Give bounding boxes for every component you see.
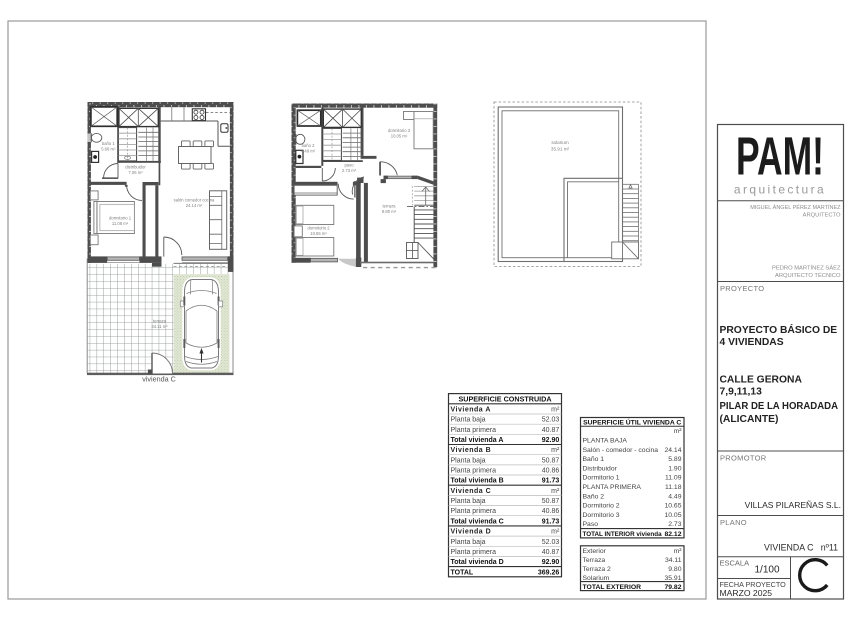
svg-text:ARQUITECTO TÉCNICO: ARQUITECTO TÉCNICO	[775, 272, 841, 279]
svg-text:m²: m²	[551, 447, 560, 454]
svg-text:50.87: 50.87	[542, 457, 560, 464]
svg-text:9.80 m²: 9.80 m²	[382, 209, 397, 214]
svg-text:Total vivienda B: Total vivienda B	[451, 478, 504, 485]
svg-text:ARQUITECTO: ARQUITECTO	[803, 213, 841, 219]
svg-text:m²: m²	[551, 529, 560, 536]
svg-text:Vivienda A: Vivienda A	[451, 407, 491, 414]
svg-text:paso: paso	[344, 163, 354, 168]
svg-text:10.65: 10.65	[664, 503, 681, 510]
svg-text:7,9,11,13: 7,9,11,13	[720, 387, 763, 398]
svg-text:10.05 m²: 10.05 m²	[391, 134, 408, 139]
svg-text:34.11: 34.11	[665, 557, 682, 564]
svg-text:SUPERFICIE CONSTRUIDA: SUPERFICIE CONSTRUIDA	[458, 395, 551, 404]
svg-text:PEDRO MARTÍNEZ SÁEZ: PEDRO MARTÍNEZ SÁEZ	[772, 265, 841, 272]
svg-text:Baño 1: Baño 1	[583, 456, 605, 463]
svg-text:VIVIENDA C nº11: VIVIENDA C nº11	[764, 543, 838, 553]
svg-text:Salón - comedor - cocina: Salón - comedor - cocina	[583, 447, 659, 454]
svg-text:arquitectura: arquitectura	[734, 183, 826, 197]
svg-text:vivienda C: vivienda C	[142, 375, 176, 384]
svg-text:Terraza: Terraza	[583, 557, 606, 564]
svg-text:Baño 2: Baño 2	[583, 493, 605, 500]
svg-text:369.26: 369.26	[538, 569, 560, 576]
svg-text:34.11 m²: 34.11 m²	[151, 324, 168, 329]
svg-text:Dormitorio 1: Dormitorio 1	[583, 475, 620, 482]
svg-text:5.68 m²: 5.68 m²	[101, 147, 116, 152]
svg-text:11.18: 11.18	[665, 484, 682, 491]
svg-text:MIGUEL ÁNGEL PÉREZ MARTÍNEZ: MIGUEL ÁNGEL PÉREZ MARTÍNEZ	[750, 204, 841, 211]
svg-text:24.14: 24.14	[664, 447, 681, 454]
svg-text:Planta primera: Planta primera	[451, 508, 497, 515]
svg-text:MARZO 2025: MARZO 2025	[720, 588, 773, 598]
svg-text:m²: m²	[674, 548, 683, 555]
svg-text:Planta baja: Planta baja	[451, 417, 486, 424]
svg-text:10.65 m²: 10.65 m²	[310, 231, 327, 236]
svg-text:TOTAL EXTERIOR: TOTAL EXTERIOR	[583, 584, 642, 591]
svg-text:35.91 m²: 35.91 m²	[551, 147, 570, 152]
svg-text:Vivienda C: Vivienda C	[451, 488, 492, 495]
svg-text:PLANTA BAJA: PLANTA BAJA	[583, 438, 628, 445]
svg-text:SUPERFICIE ÚTIL VIVIENDA C: SUPERFICIE ÚTIL VIVIENDA C	[583, 417, 681, 426]
svg-text:2.73 m²: 2.73 m²	[342, 168, 357, 173]
svg-text:7.06 m²: 7.06 m²	[128, 170, 143, 175]
svg-text:91.73: 91.73	[542, 518, 560, 525]
svg-text:Dormitorio 2: Dormitorio 2	[583, 503, 620, 510]
svg-text:Distribuidor: Distribuidor	[583, 465, 618, 472]
svg-text:PAM!: PAM!	[736, 127, 824, 187]
svg-text:dormitorio 1: dormitorio 1	[109, 216, 132, 221]
svg-text:40.87: 40.87	[542, 427, 560, 434]
svg-text:PLANO: PLANO	[720, 518, 747, 527]
svg-text:Vivienda B: Vivienda B	[451, 447, 492, 454]
svg-text:TOTAL INTERIOR vivienda: TOTAL INTERIOR vivienda	[583, 531, 663, 538]
svg-text:Solarium: Solarium	[583, 575, 610, 582]
svg-text:40.86: 40.86	[542, 508, 560, 515]
svg-text:52.03: 52.03	[542, 417, 560, 424]
svg-text:24.14 m²: 24.14 m²	[186, 203, 203, 208]
svg-text:PROYECTO: PROYECTO	[720, 284, 764, 293]
svg-text:dormitorio 2: dormitorio 2	[307, 226, 330, 231]
svg-text:11.09: 11.09	[665, 475, 682, 482]
svg-text:PILAR DE LA HORADADA: PILAR DE LA HORADADA	[720, 401, 839, 412]
svg-text:(ALICANTE): (ALICANTE)	[720, 414, 779, 425]
svg-text:82.12: 82.12	[664, 531, 681, 538]
svg-text:50.87: 50.87	[542, 498, 560, 505]
svg-text:Vivienda D: Vivienda D	[451, 529, 492, 536]
svg-text:PROMOTOR: PROMOTOR	[720, 454, 767, 463]
svg-text:40.87: 40.87	[542, 549, 560, 556]
svg-text:salón comedor cocina: salón comedor cocina	[174, 198, 215, 203]
svg-text:Planta primera: Planta primera	[451, 468, 497, 475]
svg-text:PLANTA PRIMERA: PLANTA PRIMERA	[583, 484, 642, 491]
svg-text:Total vivienda A: Total vivienda A	[451, 437, 504, 444]
svg-text:terraza: terraza	[153, 319, 167, 324]
svg-text:Total vivienda C: Total vivienda C	[451, 518, 504, 525]
svg-text:PROYECTO BÁSICO DE: PROYECTO BÁSICO DE	[720, 323, 838, 336]
svg-text:Planta primera: Planta primera	[451, 427, 497, 434]
svg-text:40.86: 40.86	[542, 468, 560, 475]
svg-text:m²: m²	[551, 407, 560, 414]
svg-text:5.89: 5.89	[668, 456, 681, 463]
svg-text:distribuidor: distribuidor	[125, 165, 146, 170]
svg-text:Exterior: Exterior	[583, 548, 607, 555]
svg-text:92.90: 92.90	[542, 437, 560, 444]
svg-text:baño 2: baño 2	[302, 143, 315, 148]
svg-text:9.80: 9.80	[668, 566, 681, 573]
svg-text:baño 1: baño 1	[102, 141, 115, 146]
svg-text:Planta baja: Planta baja	[451, 457, 486, 464]
svg-text:4.49 m²: 4.49 m²	[301, 149, 316, 154]
svg-text:Paso: Paso	[583, 521, 599, 528]
svg-text:4.49: 4.49	[668, 493, 681, 500]
svg-text:TOTAL: TOTAL	[451, 569, 474, 576]
svg-text:1.90: 1.90	[668, 465, 681, 472]
svg-text:52.03: 52.03	[542, 539, 560, 546]
svg-text:VILLAS PILAREÑAS S.L.: VILLAS PILAREÑAS S.L.	[745, 500, 841, 510]
svg-text:11.08 m²: 11.08 m²	[112, 221, 129, 226]
svg-text:2.73: 2.73	[668, 521, 681, 528]
svg-text:1/100: 1/100	[754, 565, 779, 576]
svg-text:Terraza 2: Terraza 2	[583, 566, 612, 573]
svg-text:Dormitorio 3: Dormitorio 3	[583, 512, 620, 519]
svg-text:solarium: solarium	[551, 140, 569, 145]
svg-text:91.73: 91.73	[542, 478, 560, 485]
svg-text:35.91: 35.91	[664, 575, 681, 582]
svg-text:m²: m²	[551, 488, 560, 495]
svg-text:terraza: terraza	[382, 204, 396, 209]
svg-text:Planta baja: Planta baja	[451, 539, 486, 546]
svg-text:Total vivienda D: Total vivienda D	[451, 559, 504, 566]
svg-text:CALLE GERONA: CALLE GERONA	[720, 375, 803, 386]
svg-text:Planta primera: Planta primera	[451, 549, 497, 556]
svg-text:79.82: 79.82	[664, 584, 681, 591]
svg-text:m²: m²	[674, 428, 683, 435]
svg-text:ESCALA: ESCALA	[720, 559, 750, 568]
svg-text:Planta baja: Planta baja	[451, 498, 486, 505]
svg-text:dormitorio 3: dormitorio 3	[388, 128, 411, 133]
svg-text:92.90: 92.90	[542, 559, 560, 566]
svg-text:10.05: 10.05	[664, 512, 681, 519]
svg-text:4 VIVIENDAS: 4 VIVIENDAS	[720, 337, 784, 348]
